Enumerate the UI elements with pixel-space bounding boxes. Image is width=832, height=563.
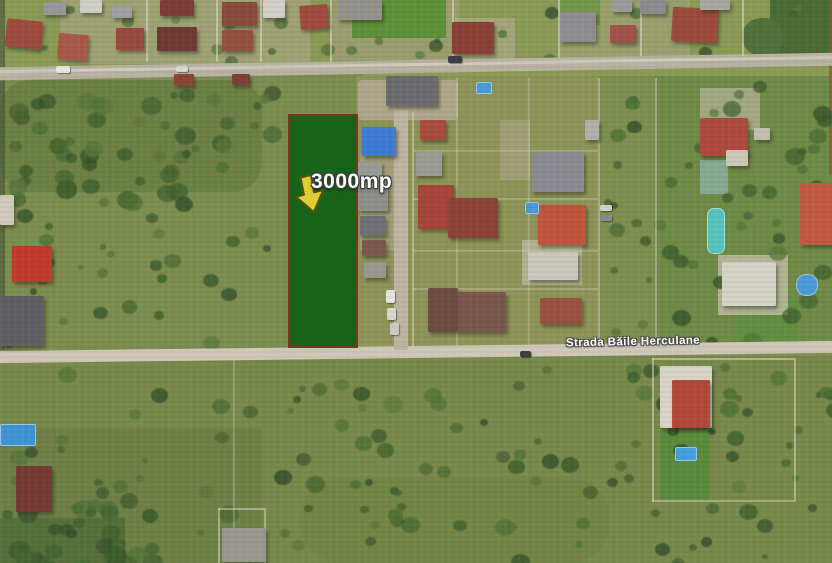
house-roof: [585, 120, 599, 140]
satellite-map: 3000mp Strada Băile Herculane: [0, 0, 832, 563]
bush: [78, 265, 84, 270]
bush: [175, 127, 196, 145]
house-roof: [671, 7, 719, 43]
road: [394, 110, 408, 350]
fence-line: [652, 358, 794, 360]
bush: [627, 372, 640, 383]
bush: [160, 121, 170, 129]
bush: [576, 518, 589, 529]
bush: [394, 490, 402, 497]
house-roof: [362, 240, 386, 256]
driveway-patch: [700, 160, 728, 194]
bush: [534, 438, 543, 445]
bush: [358, 404, 367, 412]
bush: [151, 388, 168, 403]
swimming-pool: [707, 208, 725, 254]
house-roof: [263, 0, 285, 18]
bush: [182, 150, 191, 158]
swimming-pool: [525, 202, 539, 214]
house-roof: [12, 246, 52, 282]
car: [390, 323, 399, 335]
house-roof: [610, 25, 636, 43]
house-roof: [420, 120, 446, 140]
house-roof: [0, 195, 14, 225]
house-roof: [532, 152, 584, 192]
bush: [129, 409, 142, 420]
bush: [706, 503, 719, 514]
bush: [793, 4, 802, 11]
house-roof: [528, 252, 578, 280]
swimming-pool: [796, 274, 818, 296]
house-roof: [612, 0, 632, 12]
fence-line: [218, 508, 220, 563]
house-roof: [338, 0, 382, 20]
bush: [306, 476, 326, 493]
car: [56, 66, 70, 73]
house-roof: [16, 466, 52, 512]
bush: [15, 550, 36, 563]
bush: [377, 443, 395, 458]
bush: [542, 366, 552, 374]
bush: [611, 328, 621, 336]
bush: [133, 117, 145, 127]
bush: [727, 431, 745, 446]
bush: [720, 401, 739, 417]
bush: [104, 546, 127, 563]
bush: [216, 162, 229, 173]
house-roof: [672, 380, 710, 428]
bush: [58, 367, 77, 383]
house-roof: [722, 262, 776, 306]
bush: [613, 161, 622, 169]
bush: [55, 170, 74, 186]
bush: [631, 219, 641, 228]
bush: [437, 466, 451, 478]
bush: [723, 388, 737, 400]
house-roof: [800, 183, 832, 245]
bush: [136, 475, 144, 482]
bush: [157, 185, 177, 202]
bush: [150, 260, 163, 271]
bush: [122, 194, 143, 212]
house-roof: [540, 298, 582, 324]
bush: [84, 141, 102, 157]
bush: [335, 419, 350, 431]
house-roof: [222, 30, 253, 51]
house-roof: [700, 0, 730, 10]
bush: [287, 408, 294, 414]
bush: [292, 540, 305, 551]
bush: [817, 114, 832, 127]
bush: [141, 97, 162, 115]
bush: [94, 479, 102, 486]
bush: [39, 234, 53, 246]
bush: [742, 184, 757, 197]
bush: [753, 81, 767, 93]
fence-line: [218, 508, 264, 510]
bush: [8, 179, 27, 195]
car: [386, 290, 395, 303]
bush: [38, 94, 55, 109]
bush: [93, 307, 108, 319]
bush: [45, 223, 53, 230]
house-roof: [5, 18, 44, 50]
bush: [624, 474, 635, 483]
bush: [640, 236, 651, 246]
house-roof: [57, 33, 89, 61]
fence-line: [216, 0, 218, 62]
bush: [782, 308, 801, 324]
bush: [388, 509, 403, 522]
bush: [207, 94, 220, 105]
house-roof: [754, 128, 770, 140]
bush: [203, 274, 218, 287]
bush: [507, 523, 517, 532]
bush: [96, 487, 109, 498]
bush: [171, 16, 180, 24]
bush: [19, 165, 33, 177]
house-roof: [386, 76, 438, 106]
house-roof: [726, 150, 748, 166]
bush: [609, 223, 625, 237]
bush: [496, 451, 510, 463]
fence-line: [598, 78, 600, 346]
bush: [296, 453, 312, 466]
house-roof: [222, 528, 266, 562]
house-roof: [458, 292, 506, 332]
bush: [607, 478, 618, 487]
bush: [401, 517, 420, 533]
bush: [66, 153, 77, 162]
bush: [122, 300, 138, 313]
car: [176, 66, 188, 72]
bush: [701, 537, 712, 546]
bush: [157, 274, 167, 283]
bush: [736, 222, 746, 230]
bush: [708, 429, 715, 435]
fence-line: [742, 0, 744, 56]
bush: [688, 260, 698, 269]
bush: [665, 177, 677, 188]
house-roof: [452, 22, 494, 54]
swimming-pool: [675, 447, 697, 461]
bush: [212, 399, 230, 414]
bush: [353, 387, 370, 401]
bush: [274, 17, 288, 29]
bush: [638, 320, 648, 329]
bush: [545, 7, 559, 19]
bush: [120, 493, 139, 509]
bush: [419, 463, 434, 475]
bush: [175, 197, 193, 212]
car: [600, 215, 612, 221]
bush: [179, 89, 194, 102]
car: [448, 56, 462, 63]
bush: [154, 311, 164, 320]
swimming-pool: [476, 82, 492, 94]
bush: [772, 219, 781, 227]
terrain-patch: [598, 76, 658, 348]
bush: [226, 236, 240, 248]
house-roof: [232, 74, 250, 85]
bush: [100, 244, 106, 249]
parcel-area-label: 3000mp: [311, 170, 392, 194]
bush: [350, 480, 361, 489]
house-roof: [80, 0, 102, 13]
bush: [56, 435, 68, 445]
house-roof: [116, 28, 144, 50]
bush: [655, 543, 671, 556]
bush: [82, 179, 99, 194]
bush: [263, 126, 282, 142]
house-roof: [112, 6, 132, 18]
bush: [786, 442, 793, 448]
bush: [453, 520, 467, 532]
bush: [334, 379, 348, 391]
bush: [221, 288, 237, 302]
swimming-pool: [0, 424, 36, 446]
parcel-highlight: [288, 114, 358, 348]
house-roof: [299, 4, 329, 30]
house-roof: [416, 152, 442, 176]
car: [520, 351, 531, 357]
house-roof: [364, 262, 386, 278]
bush: [662, 245, 679, 260]
house-roof: [222, 2, 257, 26]
bush: [135, 177, 145, 186]
bush: [82, 158, 97, 171]
bush: [321, 44, 335, 56]
bush: [480, 419, 489, 426]
bush: [769, 246, 787, 261]
bush: [197, 529, 205, 536]
bush: [739, 504, 758, 521]
bush: [773, 233, 785, 244]
bush: [220, 117, 235, 130]
fence-line: [794, 358, 796, 502]
fence-line: [412, 112, 414, 346]
house-roof: [640, 0, 666, 14]
bush: [498, 30, 507, 37]
bush: [250, 122, 259, 130]
bush: [73, 518, 85, 528]
bush: [754, 20, 766, 30]
fence-line: [146, 0, 148, 62]
fence-line: [652, 500, 794, 502]
bush: [99, 198, 109, 207]
bush: [450, 423, 462, 433]
bush: [371, 429, 387, 443]
bush: [17, 209, 33, 223]
car: [387, 308, 396, 320]
bush: [770, 371, 787, 385]
bush: [709, 109, 719, 118]
car: [600, 205, 612, 211]
bush: [808, 504, 817, 511]
bush: [797, 165, 808, 174]
bush: [631, 440, 641, 448]
bush: [375, 37, 384, 44]
bush: [274, 470, 291, 485]
bush: [164, 254, 181, 268]
bush: [49, 138, 67, 153]
house-roof: [362, 127, 396, 156]
bush: [243, 406, 258, 419]
fence-line: [655, 78, 657, 346]
bush: [9, 141, 22, 152]
fence-line: [260, 0, 262, 62]
bush: [732, 480, 746, 492]
fence-line: [652, 358, 654, 502]
bush: [819, 387, 832, 399]
house-roof: [560, 12, 596, 42]
bush: [383, 396, 403, 413]
bush: [312, 383, 327, 395]
house-roof: [44, 2, 66, 15]
house-roof: [538, 205, 586, 245]
bush: [415, 51, 424, 59]
fence-line: [330, 0, 332, 62]
bush: [365, 479, 373, 486]
house-roof: [174, 74, 194, 86]
bush: [245, 227, 259, 239]
house-roof: [428, 288, 458, 332]
bush: [66, 529, 77, 538]
bush: [107, 251, 114, 257]
house-roof: [157, 27, 197, 51]
bush: [625, 97, 640, 110]
bush: [723, 101, 741, 117]
bush: [280, 529, 290, 538]
bush: [142, 509, 158, 523]
bush: [299, 386, 306, 392]
house-roof: [0, 296, 44, 346]
bush: [30, 288, 38, 295]
bush: [672, 558, 684, 563]
bush: [164, 164, 179, 177]
house-roof: [360, 216, 386, 236]
bush: [304, 505, 312, 512]
bush: [263, 245, 271, 252]
bush: [561, 457, 579, 472]
house-roof: [160, 0, 194, 16]
bush: [757, 519, 774, 533]
bush: [762, 186, 777, 199]
house-roof: [448, 198, 498, 238]
